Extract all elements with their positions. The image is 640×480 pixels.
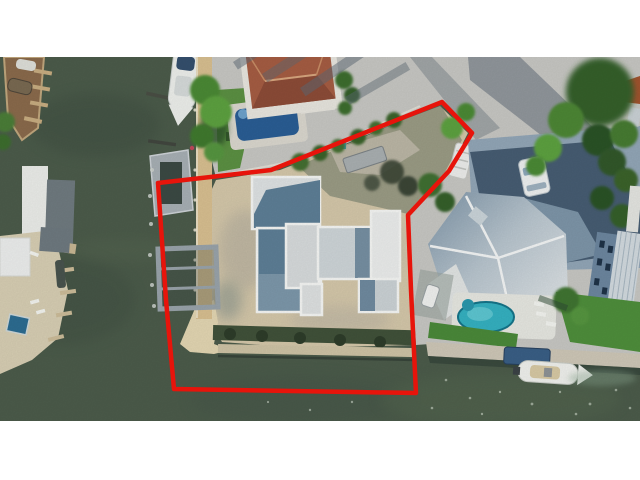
photo-grain	[0, 57, 640, 421]
photo-canvas	[0, 57, 640, 421]
top-white-bar	[0, 0, 640, 57]
bottom-white-bar	[0, 421, 640, 480]
screenshot-root	[0, 0, 640, 480]
aerial-photo	[0, 57, 640, 421]
